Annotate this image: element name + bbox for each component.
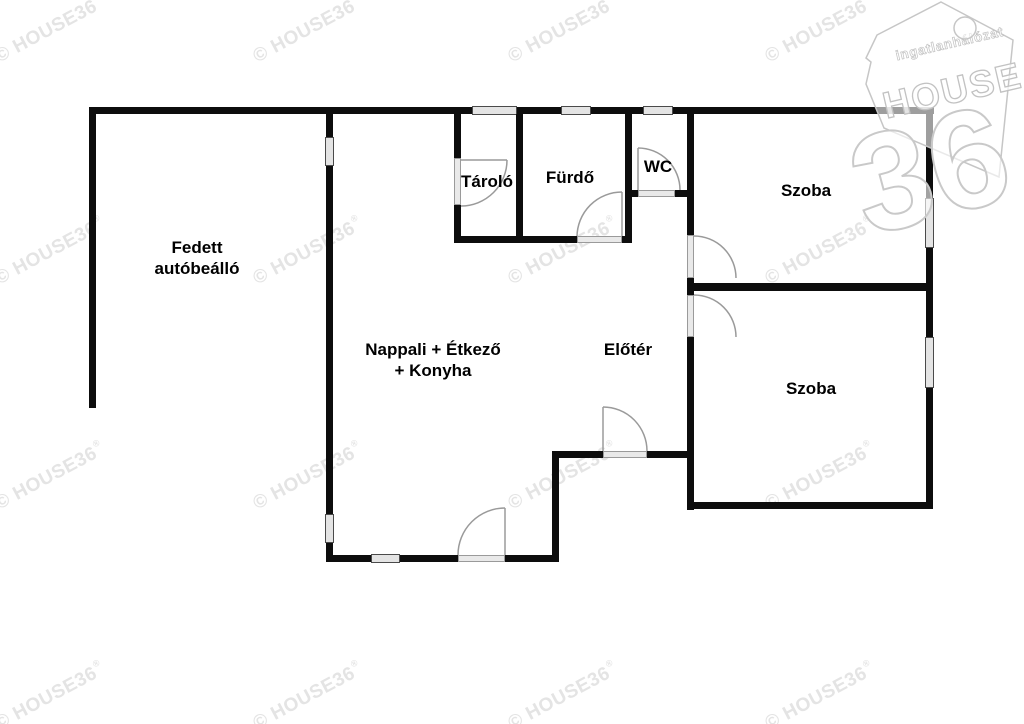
- room-label-line: Tároló: [461, 171, 513, 192]
- room-label-line: Fedett: [154, 237, 239, 258]
- room-label-storage: Tároló: [461, 171, 513, 192]
- room-labels: Fedett autóbeálló Tároló Fürdő WC Szoba …: [0, 0, 1024, 724]
- room-label-line: autóbeálló: [154, 258, 239, 279]
- room-label-line: WC: [644, 156, 672, 177]
- room-label-carport: Fedett autóbeálló: [154, 237, 239, 279]
- room-label-line: Szoba: [786, 378, 836, 399]
- floor-plan-canvas: © HOUSE36®© HOUSE36®© HOUSE36®© HOUSE36®…: [0, 0, 1024, 724]
- room-label-room-bottom: Szoba: [786, 378, 836, 399]
- room-label-room-top: Szoba: [781, 180, 831, 201]
- room-label-line: Fürdő: [546, 167, 594, 188]
- room-label-line: Szoba: [781, 180, 831, 201]
- room-label-line: Előtér: [604, 339, 652, 360]
- room-label-hall: Előtér: [604, 339, 652, 360]
- room-label-line: + Konyha: [365, 360, 501, 381]
- room-label-bathroom: Fürdő: [546, 167, 594, 188]
- room-label-line: Nappali + Étkező: [365, 339, 501, 360]
- room-label-wc: WC: [644, 156, 672, 177]
- room-label-living: Nappali + Étkező + Konyha: [365, 339, 501, 381]
